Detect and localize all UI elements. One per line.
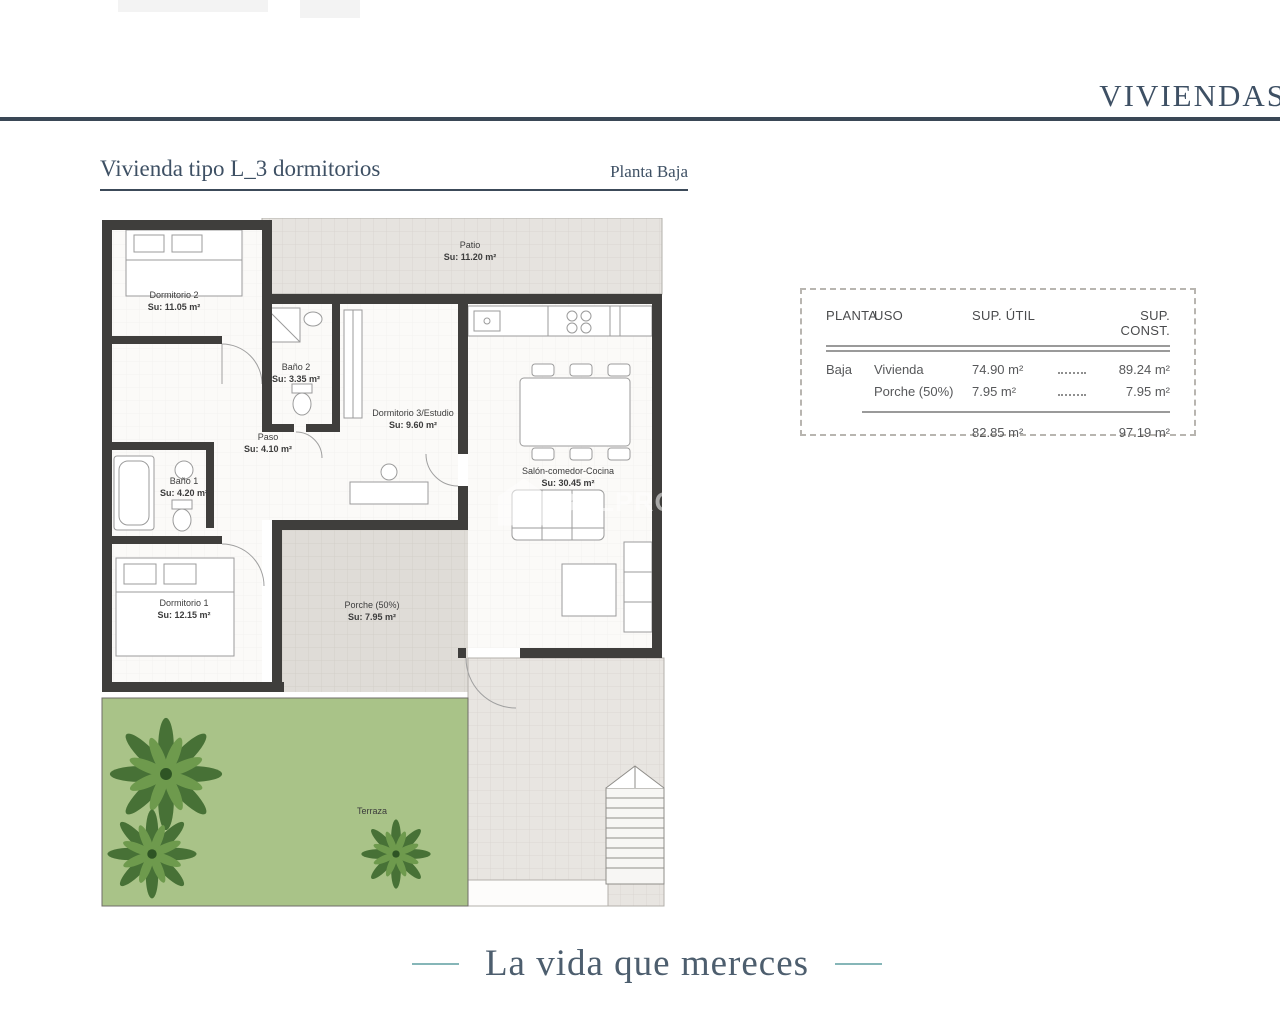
plan-title-row: Vivienda tipo L_3 dormitorios Planta Baj… [100, 156, 688, 191]
table-totals-row: 82.85 m² 97.19 m² [826, 425, 1170, 440]
dotted-leader [1058, 371, 1086, 374]
table-header-row: PLANTA USO SUP. ÚTIL SUP. CONST. [826, 308, 1170, 338]
dotted-leader [1058, 393, 1086, 396]
room-label-bano2: Baño 2 Su: 3.35 m² [272, 362, 320, 385]
dining-table-icon [520, 364, 630, 460]
side-table-icon [562, 564, 616, 616]
bed-dormitorio2-icon [126, 230, 242, 296]
palm-tree-icon [110, 718, 222, 830]
room-label-terraza: Terraza [357, 806, 387, 818]
room-label-dormitorio1: Dormitorio 1 Su: 12.15 m² [157, 598, 210, 621]
room-label-porche: Porche (50%) Su: 7.95 m² [344, 600, 399, 623]
room-label-paso: Paso Su: 4.10 m² [244, 432, 292, 455]
tv-unit-icon [624, 542, 652, 632]
watermark: B&LPROM [498, 474, 700, 530]
total-sup-const: 97.19 m² [1090, 425, 1170, 440]
table-row-porche: Porche (50%) 7.95 m² 7.95 m² [826, 384, 1170, 399]
watermark-house-icon [498, 474, 550, 530]
palm-tree-icon [361, 819, 430, 888]
room-label-dormitorio3: Dormitorio 3/Estudio Su: 9.60 m² [372, 408, 454, 431]
header-planta: PLANTA [826, 308, 874, 323]
footer-slogan: La vida que mereces [485, 942, 809, 985]
table-header-rule [826, 345, 1170, 352]
header-sup-const: SUP. CONST. [1090, 308, 1170, 338]
floor-plan: Patio Su: 11.20 m² Dormitorio 2 Su: 11.0… [100, 218, 700, 910]
room-label-patio: Patio Su: 11.20 m² [444, 240, 497, 263]
room-label-bano1: Baño 1 Su: 4.20 m² [160, 476, 208, 499]
footer-divider-line-left [412, 963, 459, 965]
terrace-lawn [102, 698, 468, 906]
footer-slogan-row: La vida que mereces [0, 942, 1280, 985]
area-summary-table: PLANTA USO SUP. ÚTIL SUP. CONST. Baja Vi… [800, 288, 1196, 436]
cropped-logo-remnant [118, 0, 268, 12]
stairs-icon [606, 766, 664, 884]
floor-plan-drawing [100, 218, 700, 910]
footer-divider-line-right [835, 963, 882, 965]
table-row-vivienda: Baja Vivienda 74.90 m² 89.24 m² [826, 362, 1170, 377]
kitchen-counter-icon [468, 306, 652, 336]
plan-floor-label: Planta Baja [610, 162, 688, 182]
cropped-logo-remnant-2 [300, 0, 360, 18]
watermark-text: B&LPROM [557, 487, 701, 518]
brochure-page: VIVIENDAS Vivienda tipo L_3 dormitorios … [0, 0, 1280, 1024]
room-label-dormitorio2: Dormitorio 2 Su: 11.05 m² [148, 290, 201, 313]
header-uso: USO [874, 308, 972, 323]
header-rule [0, 117, 1280, 121]
brand-wordmark: VIVIENDAS [1099, 78, 1280, 114]
total-sup-util: 82.85 m² [972, 425, 1058, 440]
plan-title: Vivienda tipo L_3 dormitorios [100, 156, 380, 182]
header-sup-util: SUP. ÚTIL [972, 308, 1058, 323]
palm-tree-icon [107, 809, 196, 898]
table-total-rule [862, 411, 1170, 413]
